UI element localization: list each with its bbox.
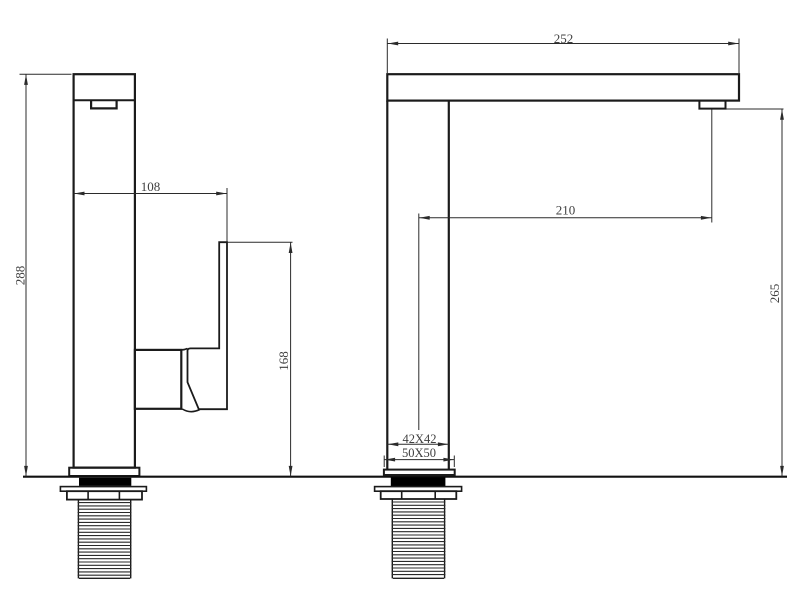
svg-text:265: 265 <box>767 284 782 304</box>
svg-text:50X50: 50X50 <box>402 446 436 460</box>
svg-text:252: 252 <box>554 31 574 46</box>
svg-text:168: 168 <box>276 351 291 371</box>
svg-text:210: 210 <box>556 203 576 218</box>
svg-text:288: 288 <box>12 266 27 286</box>
svg-text:108: 108 <box>141 179 161 194</box>
